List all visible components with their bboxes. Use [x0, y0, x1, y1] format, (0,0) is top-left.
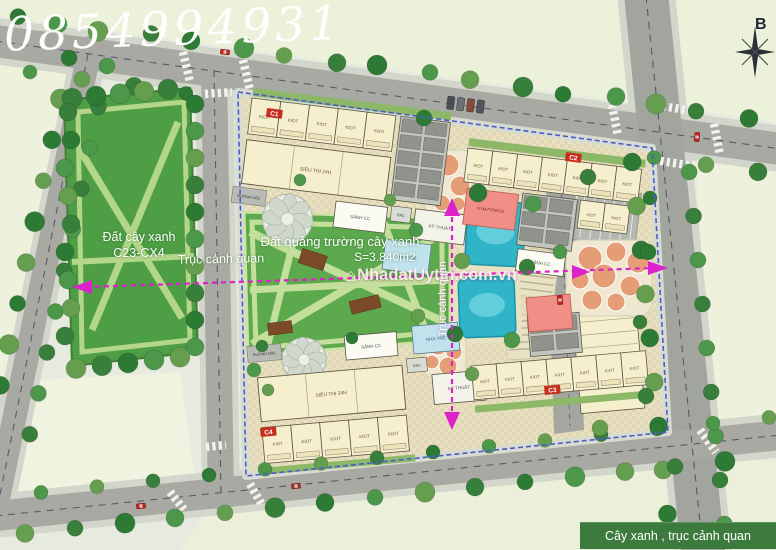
parked-car-icon [446, 96, 455, 110]
tree-icon [667, 458, 683, 474]
tree-icon [698, 157, 714, 173]
tree-icon [99, 58, 115, 74]
axis-vertical-label: Trục cảnh quan [437, 244, 449, 354]
tree-icon [469, 184, 487, 202]
tree-icon [23, 65, 37, 79]
core-cell [421, 153, 443, 168]
tree-icon [762, 410, 776, 424]
tree-icon [525, 196, 541, 212]
tree-icon [633, 315, 647, 329]
core-cell [545, 230, 569, 246]
tree-icon [346, 332, 358, 344]
trash-label: RÁC [413, 364, 422, 369]
kiot-label: KIOT [605, 367, 616, 373]
core-cell [549, 198, 573, 214]
tree-icon [134, 81, 154, 101]
tree-icon [62, 299, 80, 317]
tree-icon [466, 478, 484, 496]
tree-icon [202, 468, 216, 482]
tree-icon [640, 244, 656, 260]
core-c1 [391, 116, 451, 205]
tree-icon [170, 347, 190, 367]
tree-icon [74, 71, 90, 87]
tree-icon [30, 385, 46, 401]
core-cell [521, 211, 545, 227]
tree-icon [217, 505, 233, 521]
block-label-c1: C1 [270, 110, 279, 118]
community-room [526, 294, 573, 332]
tree-icon [712, 472, 728, 488]
car-icon [136, 503, 145, 509]
tree-icon [115, 513, 135, 533]
tree-icon [740, 109, 758, 127]
tree-icon [92, 356, 112, 376]
tree-icon [328, 54, 346, 72]
tree-icon [461, 71, 479, 89]
tree-icon [592, 420, 608, 436]
car-roof [294, 484, 297, 488]
tree-icon [715, 451, 735, 471]
site-plan-screenshot: KIOTKIOTKIOTKIOTKIOT SIÊU THỊ 24H RÁC KỸ… [0, 0, 776, 550]
tree-icon [186, 284, 204, 302]
tree-icon [688, 103, 704, 119]
core-cell [519, 227, 543, 243]
block-label-c3: C3 [548, 387, 557, 395]
tree-icon [694, 296, 710, 312]
tree-icon [565, 467, 585, 487]
tree-icon [411, 309, 425, 323]
tree-icon [186, 122, 204, 140]
tree-icon [62, 131, 80, 149]
tree-icon [580, 169, 596, 185]
tree-icon [384, 194, 396, 206]
tree-icon [43, 131, 61, 149]
tree-icon [294, 174, 306, 186]
tree-icon [681, 164, 697, 180]
tree-icon [10, 296, 26, 312]
tree-icon [186, 95, 204, 113]
tree-icon [86, 86, 106, 106]
tree-icon [708, 428, 724, 444]
car-icon [291, 483, 300, 489]
tree-icon [706, 416, 720, 430]
block-label-c2: C2 [569, 154, 578, 162]
kiot-label: KIOT [505, 376, 516, 382]
tree-icon [447, 326, 463, 342]
kiot-label: KIOT [330, 436, 341, 442]
tree-icon [110, 84, 130, 104]
kiot-label: KIOT [480, 378, 491, 384]
tree-icon [186, 311, 204, 329]
car-roof [695, 135, 699, 138]
tree-icon [367, 489, 383, 505]
house-icon: ⌂ [345, 265, 356, 285]
tree-icon [35, 173, 51, 189]
tree-icon [686, 208, 702, 224]
parked-car-icon [466, 98, 475, 112]
tree-icon [690, 252, 706, 268]
tree-icon [623, 153, 641, 171]
car-icon [694, 132, 700, 141]
car-icon [557, 295, 563, 304]
tree-icon [636, 285, 654, 303]
parked-car-icon [476, 100, 485, 114]
core-cell [395, 166, 417, 181]
tree-icon [422, 64, 438, 80]
tree-icon [265, 498, 285, 518]
tree-icon [262, 384, 274, 396]
tree-icon [144, 350, 164, 370]
legend-text: Cây xanh , trục cảnh quan [605, 529, 751, 543]
tree-icon [0, 334, 19, 354]
tree-icon [56, 327, 74, 345]
tree-icon [82, 140, 98, 156]
tree-icon [17, 254, 35, 272]
watermark-site: ⌂NhadatUytin.com.vn [318, 265, 544, 286]
tree-icon [25, 212, 45, 232]
tree-icon [56, 243, 74, 261]
core-cell [397, 150, 419, 165]
core-cell [419, 169, 441, 184]
block-label-c4: C4 [264, 429, 273, 437]
core-cell [531, 335, 554, 352]
tree-icon [641, 329, 659, 347]
tree-icon [256, 340, 268, 352]
tree-icon [638, 388, 654, 404]
tree-icon [555, 86, 571, 102]
tree-icon [66, 359, 86, 379]
tree-icon [703, 384, 719, 400]
plaza-area: S=3.840m2 [277, 250, 493, 264]
tree-icon [607, 88, 625, 106]
core-cell [399, 134, 421, 149]
kiot-label: KIOT [555, 372, 566, 378]
tree-icon [90, 480, 104, 494]
kiot-label: KIOT [580, 370, 591, 376]
park-area [64, 88, 198, 366]
kiot-label: KIOT [530, 374, 541, 380]
tree-icon [553, 245, 567, 259]
tree-icon [186, 176, 204, 194]
tree-icon [59, 187, 77, 205]
tree-icon [16, 524, 34, 542]
tree-icon [646, 94, 666, 114]
tree-icon [247, 363, 261, 377]
tree-icon [158, 79, 178, 99]
core-cell [417, 185, 439, 200]
tree-icon [316, 494, 334, 512]
car-roof [139, 504, 142, 508]
tree-icon [22, 426, 38, 442]
tree-icon [59, 103, 77, 121]
core-cell [393, 182, 415, 197]
core-cell [547, 214, 571, 230]
kiot-label: KIOT [629, 365, 640, 371]
tree-icon [39, 344, 55, 360]
park-name: Đất cây xanh [73, 230, 205, 246]
plaza-label: Đất quảng trường cây xanh S=3.840m2 [232, 234, 448, 264]
core-cell [423, 137, 445, 152]
kiot-label: KIOT [272, 441, 283, 447]
tree-icon [513, 77, 533, 97]
tree-icon [56, 159, 74, 177]
kiot-label: KIOT [388, 431, 399, 437]
tree-icon [647, 151, 661, 165]
tree-icon [34, 485, 48, 499]
tree-icon [749, 163, 767, 181]
tree-icon [186, 149, 204, 167]
tree-icon [616, 463, 634, 481]
tree-icon [465, 367, 479, 381]
legend-bar: Cây xanh , trục cảnh quan [580, 522, 776, 549]
tree-icon [504, 332, 520, 348]
tree-icon [699, 340, 715, 356]
tree-icon [67, 520, 83, 536]
tree-icon [186, 203, 204, 221]
tree-icon [118, 353, 138, 373]
tree-icon [415, 482, 435, 502]
tree-icon [517, 474, 533, 490]
kiot-label: KIOT [359, 433, 370, 439]
parked-car-icon [456, 97, 465, 111]
tree-icon [658, 505, 676, 523]
tree-icon [367, 55, 387, 75]
kiot-label: KIOT [301, 438, 312, 444]
car-roof [558, 298, 562, 301]
tree-icon [146, 474, 160, 488]
core-cell [556, 333, 579, 350]
tree-icon [166, 509, 184, 527]
tree-icon [48, 304, 64, 320]
plaza-name: Đất quảng trường cây xanh [232, 234, 448, 250]
compass-north-label: B [755, 16, 767, 34]
